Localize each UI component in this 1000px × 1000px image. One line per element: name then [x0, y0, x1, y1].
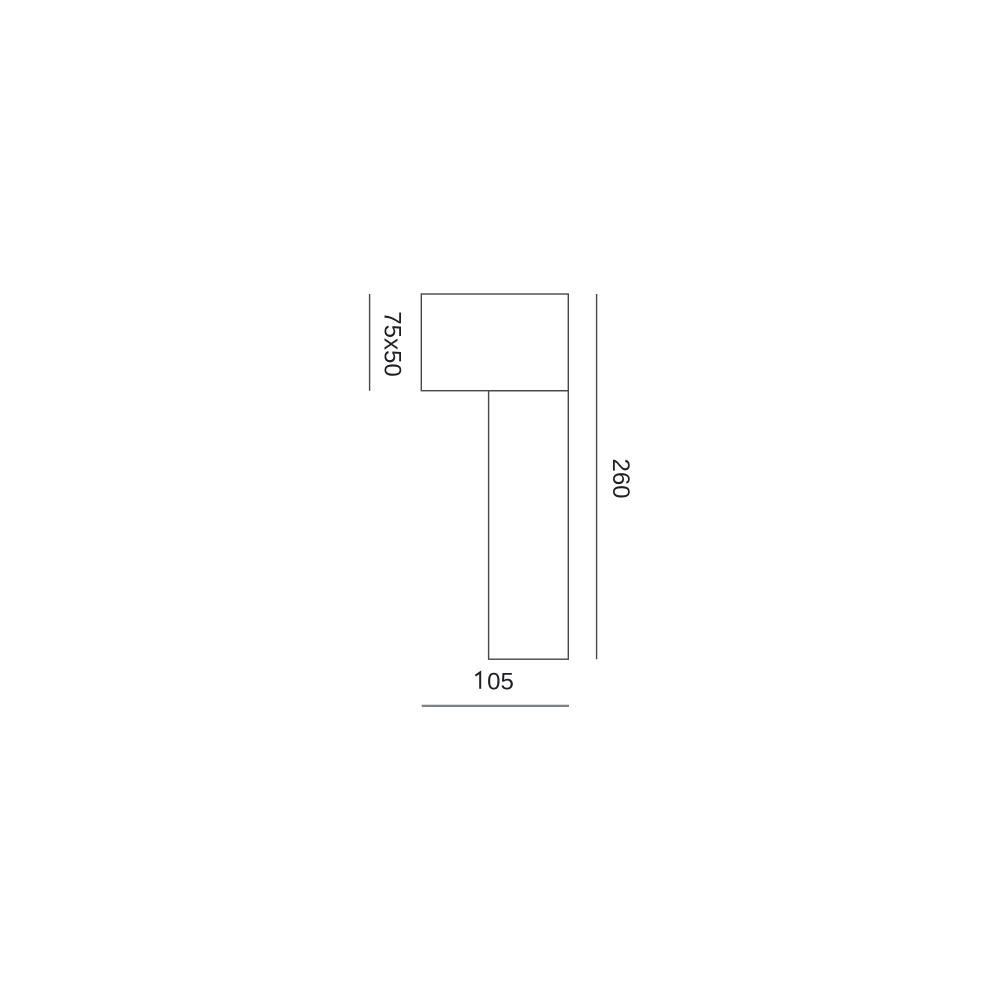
svg-text:05: 05 — [487, 669, 514, 696]
svg-text:260: 260 — [607, 458, 634, 498]
svg-text:75x50: 75x50 — [379, 311, 406, 376]
